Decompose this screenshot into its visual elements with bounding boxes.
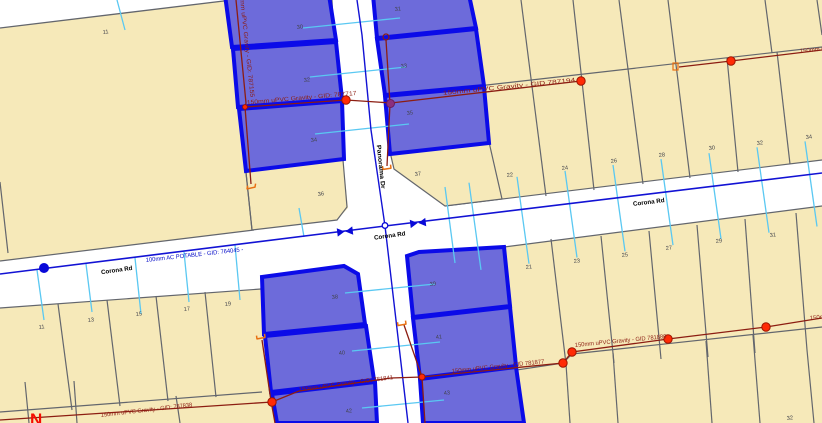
svg-text:32: 32: [304, 77, 311, 84]
svg-text:35: 35: [407, 110, 414, 117]
svg-text:43: 43: [444, 390, 451, 397]
svg-text:N: N: [30, 410, 42, 423]
svg-text:29: 29: [716, 238, 723, 245]
svg-text:24: 24: [562, 165, 569, 172]
svg-text:15: 15: [136, 311, 143, 318]
svg-text:11: 11: [103, 29, 110, 36]
svg-text:32: 32: [787, 415, 794, 422]
svg-text:31: 31: [770, 232, 777, 239]
svg-text:19: 19: [225, 301, 232, 308]
svg-text:13: 13: [88, 317, 95, 324]
svg-text:40: 40: [339, 350, 346, 357]
svg-text:25: 25: [622, 252, 629, 259]
svg-text:30: 30: [709, 145, 716, 152]
svg-text:38: 38: [332, 294, 339, 301]
svg-text:39: 39: [430, 281, 437, 288]
svg-text:37: 37: [415, 171, 422, 178]
svg-text:17: 17: [184, 306, 191, 313]
svg-text:27: 27: [666, 245, 673, 252]
svg-text:11: 11: [39, 324, 46, 331]
svg-text:42: 42: [346, 408, 353, 415]
svg-text:32: 32: [757, 140, 764, 147]
svg-text:41: 41: [436, 334, 443, 341]
svg-text:26: 26: [611, 158, 618, 165]
svg-text:36: 36: [318, 191, 325, 198]
svg-text:34: 34: [311, 137, 318, 144]
svg-text:33: 33: [401, 63, 408, 70]
svg-text:21: 21: [526, 264, 533, 271]
svg-text:23: 23: [574, 258, 581, 265]
svg-text:31: 31: [395, 6, 402, 13]
svg-text:22: 22: [507, 172, 514, 179]
svg-text:30: 30: [297, 24, 304, 31]
svg-text:28: 28: [659, 152, 666, 159]
svg-text:34: 34: [806, 134, 813, 141]
